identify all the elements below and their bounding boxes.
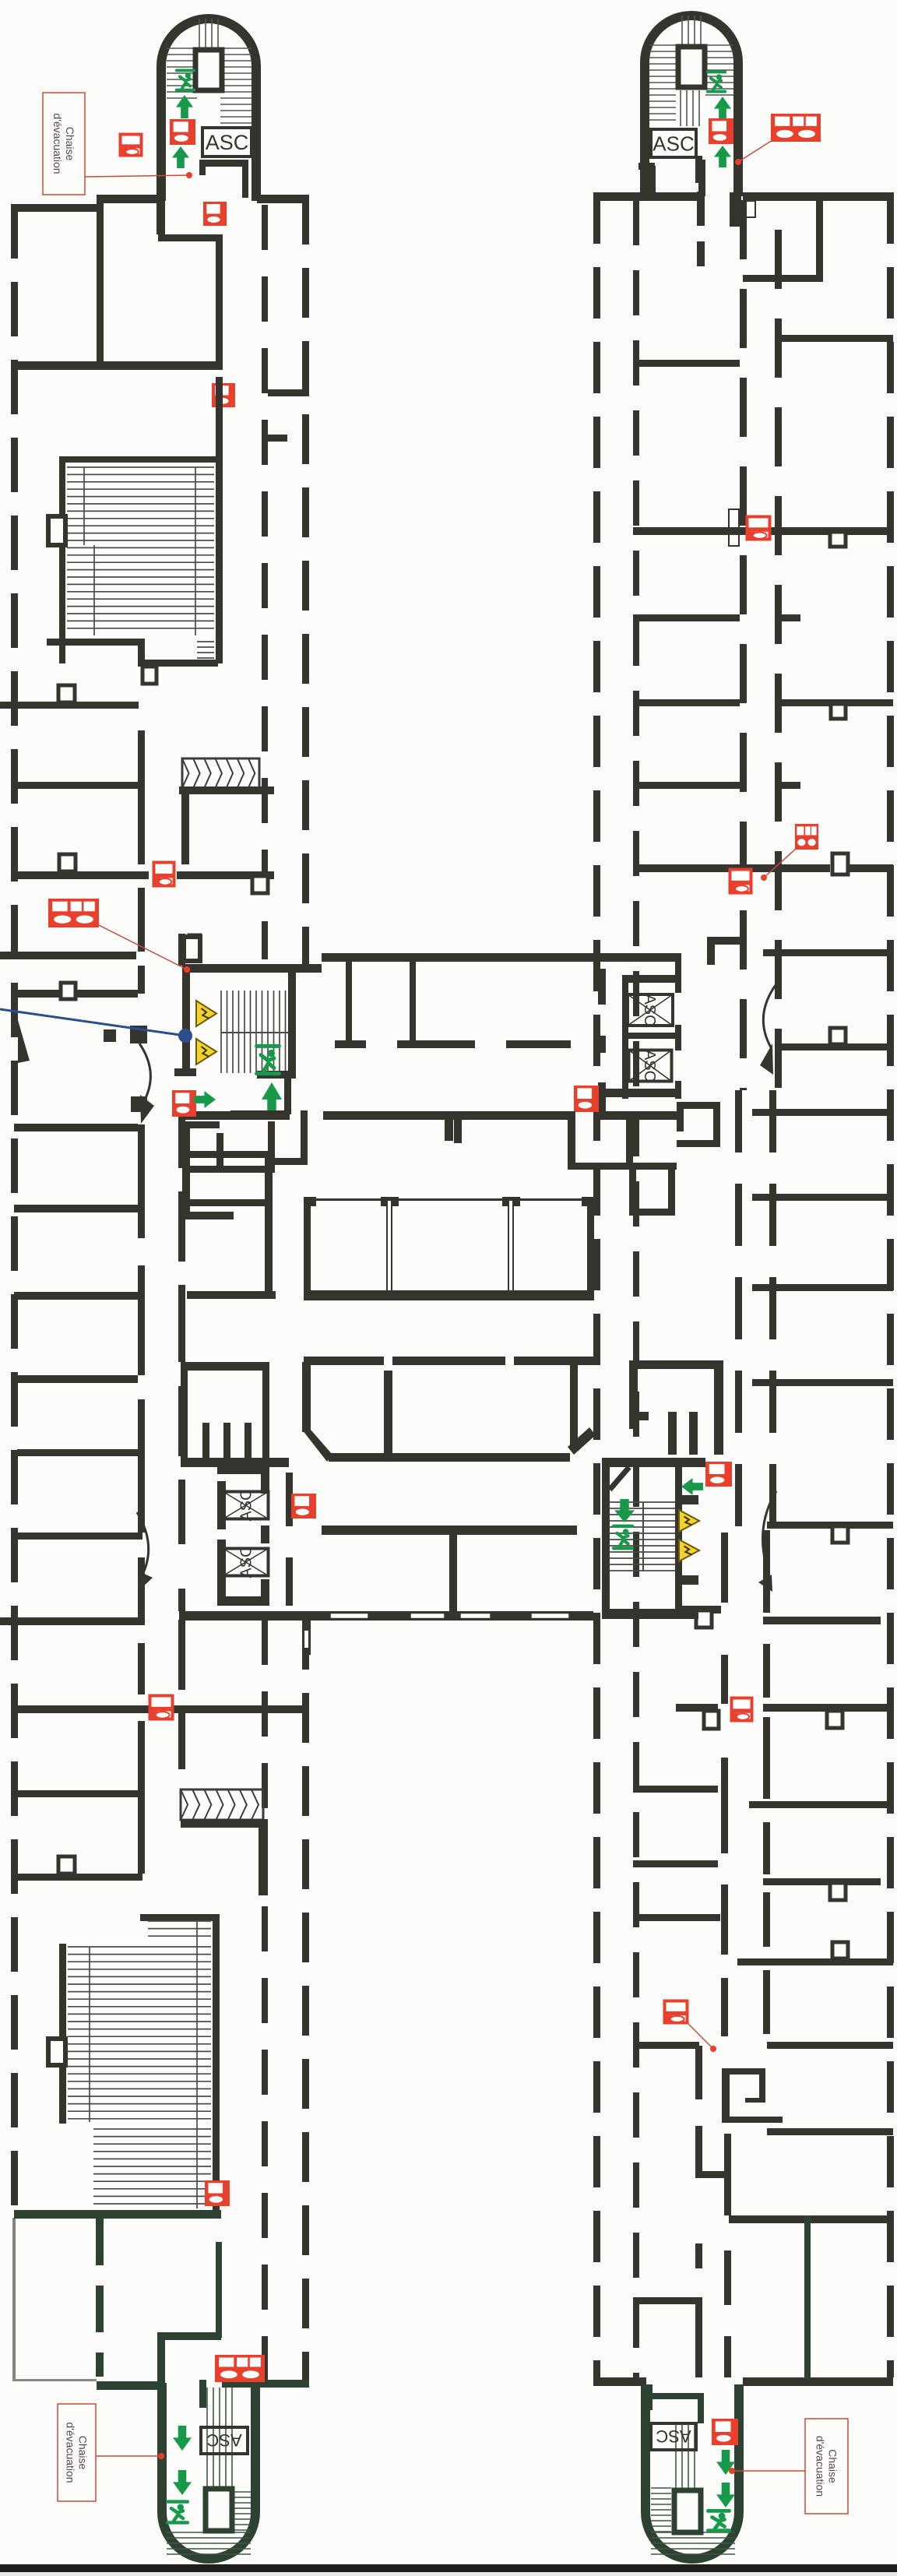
- svg-text:ASC: ASC: [206, 131, 249, 154]
- svg-text:d'évacuation: d'évacuation: [51, 113, 64, 174]
- svg-text:ASC: ASC: [238, 1546, 255, 1578]
- svg-text:Chaise: Chaise: [827, 2449, 839, 2483]
- svg-text:d'évacuation: d'évacuation: [814, 2436, 827, 2497]
- svg-text:ASC: ASC: [641, 994, 658, 1026]
- svg-text:ASC: ASC: [656, 2426, 691, 2446]
- svg-text:Chaise: Chaise: [64, 127, 76, 161]
- svg-text:ASC: ASC: [641, 1050, 658, 1082]
- svg-text:ASC: ASC: [653, 132, 694, 155]
- svg-text:d'évacuation: d'évacuation: [65, 2422, 77, 2483]
- svg-text:ASC: ASC: [206, 2430, 241, 2450]
- svg-text:Chaise: Chaise: [77, 2436, 90, 2470]
- svg-text:ASC: ASC: [238, 1489, 255, 1521]
